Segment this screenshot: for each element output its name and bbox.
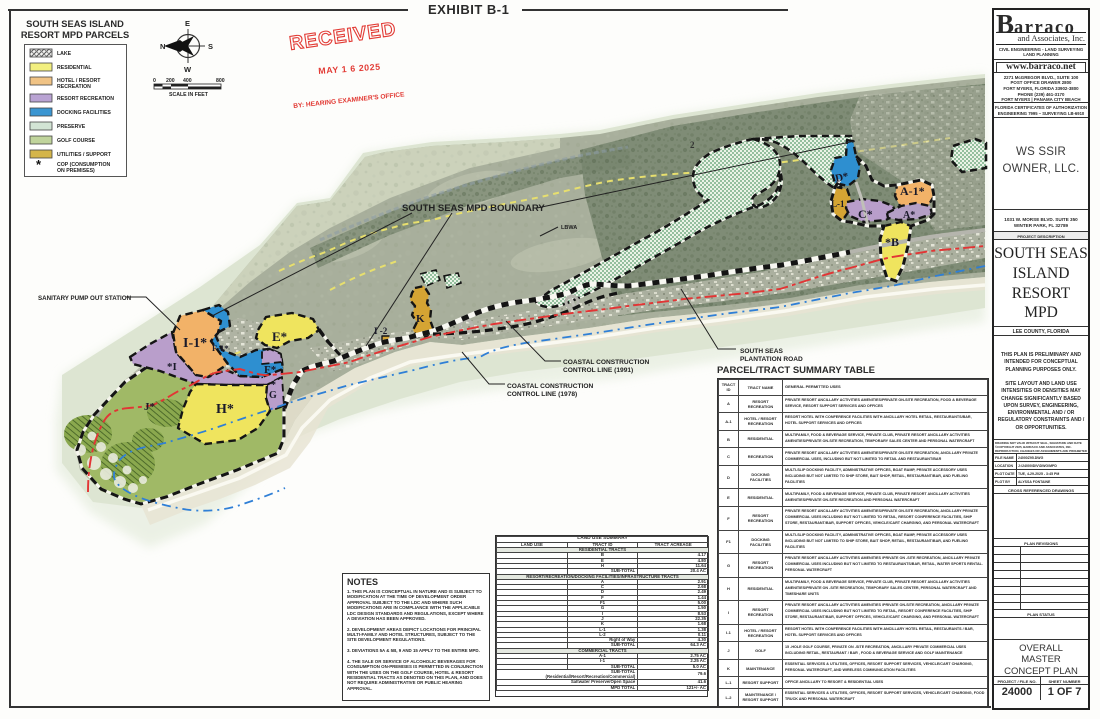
svg-text:PLANTATION ROAD: PLANTATION ROAD <box>740 356 803 363</box>
svg-text:I-1*: I-1* <box>183 336 207 351</box>
svg-text:LBWA: LBWA <box>561 225 577 231</box>
svg-text:LAKE: LAKE <box>57 51 72 57</box>
svg-text:CONTROL LINE (1978): CONTROL LINE (1978) <box>507 391 577 398</box>
svg-text:400: 400 <box>183 78 192 84</box>
svg-text:2: 2 <box>690 140 695 150</box>
svg-text:PRESERVE: PRESERVE <box>57 124 86 130</box>
svg-text:H*: H* <box>216 402 234 417</box>
svg-text:F-1*: F-1* <box>212 343 229 353</box>
svg-text:COASTAL CONSTRUCTION: COASTAL CONSTRUCTION <box>507 383 593 390</box>
svg-text:800: 800 <box>216 78 225 84</box>
svg-text:RESIDENTIAL: RESIDENTIAL <box>57 65 92 71</box>
svg-text:SCALE IN FEET: SCALE IN FEET <box>169 92 209 98</box>
svg-text:N: N <box>160 42 165 51</box>
svg-text:200: 200 <box>166 78 175 84</box>
svg-text:ON PREMISES): ON PREMISES) <box>57 168 95 174</box>
svg-text:L-1: L-1 <box>831 199 845 209</box>
svg-text:RESORT RECREATION: RESORT RECREATION <box>57 96 114 102</box>
svg-text:E: E <box>185 19 190 28</box>
svg-text:*I: *I <box>167 361 177 373</box>
svg-text:RECREATION: RECREATION <box>57 84 91 90</box>
svg-text:C*: C* <box>858 207 873 221</box>
svg-text:COASTAL CONSTRUCTION: COASTAL CONSTRUCTION <box>563 359 649 366</box>
svg-text:SANITARY PUMP OUT STATION: SANITARY PUMP OUT STATION <box>38 295 132 302</box>
svg-text:E*: E* <box>272 329 287 344</box>
svg-text:J*: J* <box>144 401 156 413</box>
svg-text:UTILITIES / SUPPORT: UTILITIES / SUPPORT <box>57 152 112 158</box>
svg-text:DOCKING FACILITIES: DOCKING FACILITIES <box>57 110 111 116</box>
svg-text:S: S <box>208 42 213 51</box>
svg-text:I -2: I -2 <box>374 326 388 336</box>
svg-text:SOUTH SEAS MPD BOUNDARY: SOUTH SEAS MPD BOUNDARY <box>402 203 545 214</box>
svg-text:F*: F* <box>264 364 277 376</box>
svg-text:*: * <box>36 157 42 172</box>
svg-text:CONTROL LINE (1991): CONTROL LINE (1991) <box>563 367 633 374</box>
svg-text:A-1*: A-1* <box>900 184 925 198</box>
svg-text:SOUTH SEAS: SOUTH SEAS <box>740 348 783 355</box>
svg-text:A*: A* <box>903 210 915 221</box>
svg-text:*B: *B <box>885 235 899 249</box>
svg-text:GOLF COURSE: GOLF COURSE <box>57 138 96 144</box>
svg-text:K: K <box>416 313 425 325</box>
svg-text:0: 0 <box>153 78 156 84</box>
svg-text:W: W <box>184 65 192 74</box>
svg-text:G: G <box>269 390 277 401</box>
